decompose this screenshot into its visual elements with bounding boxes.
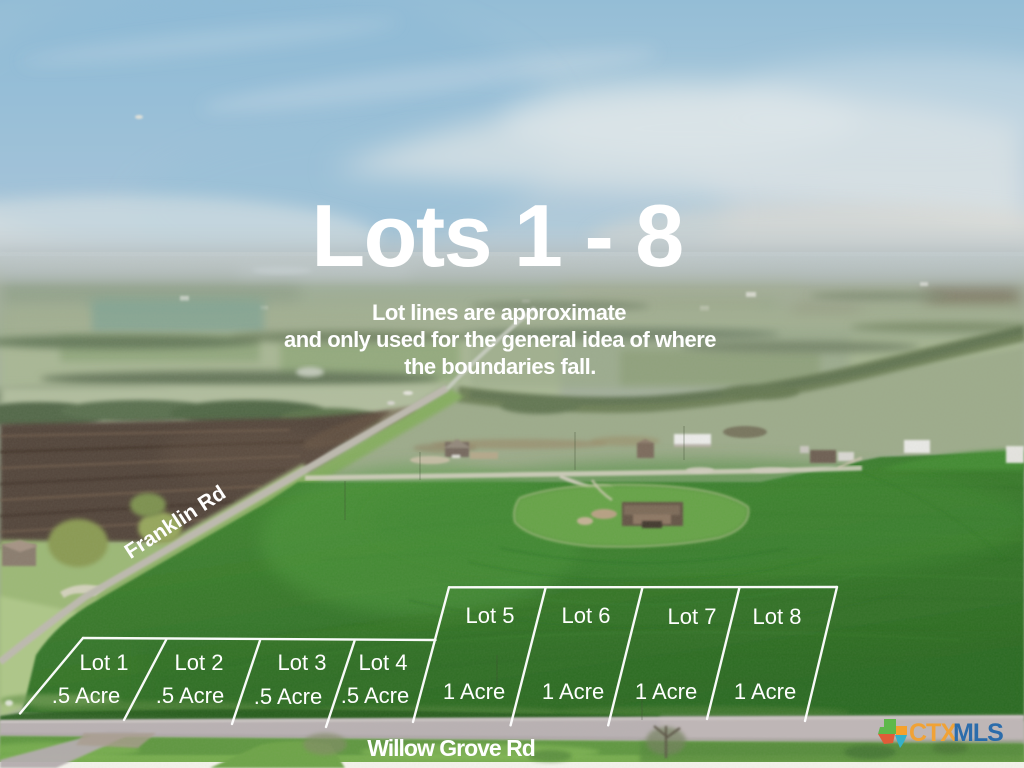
svg-text:Lot 5: Lot 5 xyxy=(466,603,515,628)
svg-text:.5 Acre: .5 Acre xyxy=(156,683,224,708)
svg-text:Lot 6: Lot 6 xyxy=(562,603,611,628)
svg-text:Lot 1: Lot 1 xyxy=(80,650,129,675)
svg-text:CTX: CTX xyxy=(909,719,957,747)
svg-text:.5 Acre: .5 Acre xyxy=(52,683,120,708)
svg-text:Lot 3: Lot 3 xyxy=(278,650,327,675)
svg-text:.5 Acre: .5 Acre xyxy=(341,683,409,708)
svg-text:Lot 7: Lot 7 xyxy=(668,604,717,629)
svg-text:1 Acre: 1 Acre xyxy=(734,679,796,704)
svg-text:.5 Acre: .5 Acre xyxy=(254,684,322,709)
svg-text:1 Acre: 1 Acre xyxy=(542,679,604,704)
svg-text:1 Acre: 1 Acre xyxy=(443,679,505,704)
svg-text:Lots 1 - 8: Lots 1 - 8 xyxy=(311,186,682,285)
svg-text:1 Acre: 1 Acre xyxy=(635,679,697,704)
svg-text:and only used for the general: and only used for the general idea of wh… xyxy=(284,327,716,352)
svg-text:Lot 2: Lot 2 xyxy=(175,650,224,675)
svg-text:the boundaries fall.: the boundaries fall. xyxy=(404,354,596,379)
svg-text:Lot 4: Lot 4 xyxy=(359,650,408,675)
svg-text:Lot 8: Lot 8 xyxy=(753,604,802,629)
svg-text:MLS: MLS xyxy=(953,719,1003,747)
svg-text:Willow Grove Rd: Willow Grove Rd xyxy=(367,735,535,761)
svg-text:Lot lines are approximate: Lot lines are approximate xyxy=(372,300,626,325)
